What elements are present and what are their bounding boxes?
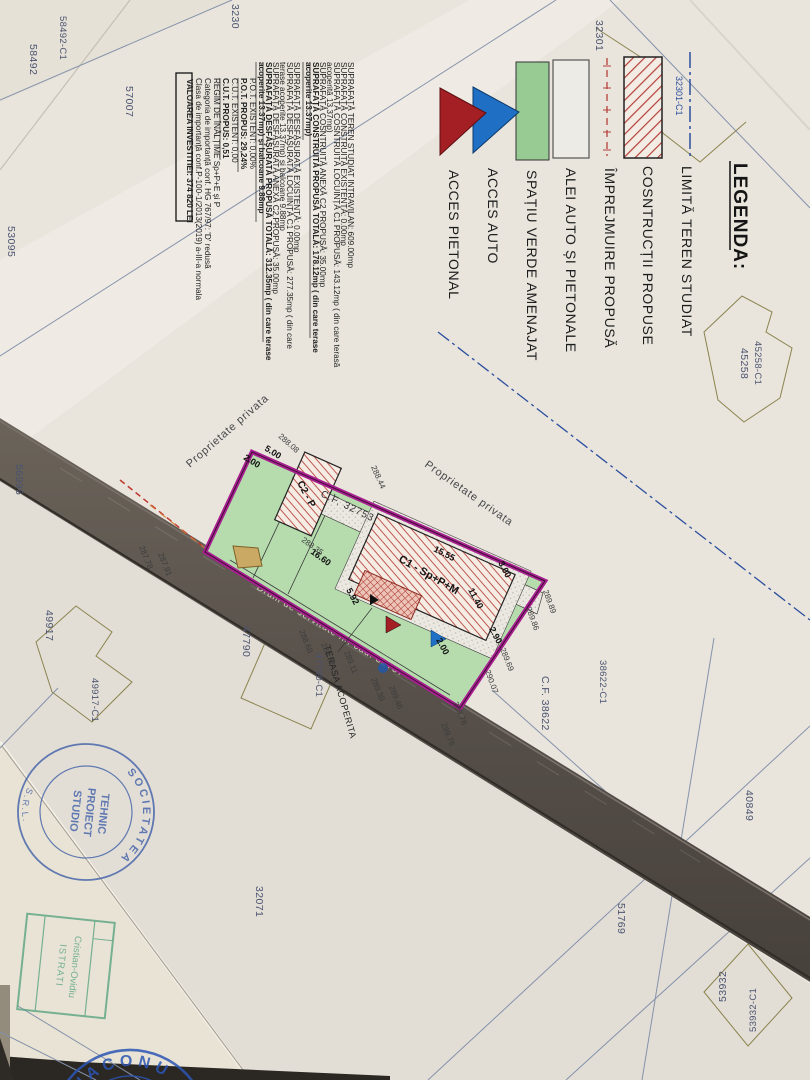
parcel-label-57007: 57007 bbox=[123, 86, 135, 117]
legend-item-spatiu-verde: SPAȚIU VERDE AMENAJAT bbox=[524, 170, 540, 361]
area-line: acoperite 13.37mp) și balcoane 9.88mp bbox=[257, 62, 266, 214]
parcel-label-49917-c1: 49917-C1 bbox=[89, 678, 100, 722]
parcel-label-40849: 40849 bbox=[743, 790, 755, 821]
indicator-line: P.O.T. EXISTENT: 0,00% bbox=[248, 78, 257, 169]
parcel-label-47790: 47790 bbox=[240, 626, 252, 657]
green-rect-icon bbox=[516, 62, 549, 160]
legend-item-acces-auto: ACCES AUTO bbox=[485, 168, 501, 264]
indicator-line: REGIM DE ÎNĂLȚIME Sp+P+E și P bbox=[212, 78, 222, 208]
parcel-label-3230: 3230 bbox=[229, 4, 241, 29]
investment-value-text: VALOAREA INVESTITIEI: 374 820 LEI bbox=[185, 79, 194, 223]
parcel-label-38622-c1: 38622-C1 bbox=[597, 660, 608, 704]
parcel-label-56996: 56996 bbox=[13, 464, 25, 495]
legend-item-imprejmuire: ÎMPREJMUIRE PROPUSĂ bbox=[602, 167, 618, 348]
parcel-label-51769: 51769 bbox=[615, 903, 627, 934]
legend-item-limita: LIMITĂ TEREN STUDIAT bbox=[679, 166, 695, 337]
parcel-label-32301: 32301 bbox=[593, 20, 605, 51]
parcel-label-32301-c1: 32301-C1 bbox=[674, 76, 684, 116]
photographed-site-plan: Drum de servitute nr. cad. 32757 C.F. 32… bbox=[0, 0, 810, 1080]
parcel-label-53095: 53095 bbox=[5, 226, 17, 257]
parcel-label-47790-c1: 47790-C1 bbox=[313, 653, 324, 697]
legend-title: LEGENDA: bbox=[729, 163, 750, 270]
parcel-label-58492: 58492 bbox=[27, 44, 39, 75]
existing-gate-shape bbox=[233, 546, 262, 568]
utility-marker-icon bbox=[378, 663, 388, 673]
red-hatch-rect-icon bbox=[624, 57, 662, 158]
indicator-line: Clasa de importanță conf.P-100-1/2013(20… bbox=[194, 78, 203, 301]
parcel-label-45258-c1: 45258-C1 bbox=[752, 341, 763, 385]
legend-item-acces-pietonal: ACCES PIETONAL bbox=[446, 170, 462, 300]
indicator-line: C.U.T. EXISTENT: 0,00 bbox=[230, 78, 239, 163]
parcel-label-cf-38622: C.F. 38622 bbox=[539, 676, 551, 731]
indicator-line: C.U.T. PROPUS: 0,51 bbox=[221, 78, 230, 159]
parcel-label-58492-c1: 58492-C1 bbox=[57, 16, 68, 60]
white-rect-icon bbox=[553, 60, 589, 158]
parcel-label-45258: 45258 bbox=[738, 348, 750, 379]
parcel-label-53932: 53932 bbox=[717, 971, 729, 1002]
legend-item-alei: ALEI AUTO ȘI PIETONALE bbox=[563, 168, 579, 353]
area-line: acoperite 13.37mp) bbox=[304, 62, 313, 136]
legend-item-constructii: COSNTRUCȚII PROPUSE bbox=[640, 166, 656, 345]
indicator-line: P.O.T. PROPUS: 29,24% bbox=[239, 78, 248, 170]
indicator-line: Categoria de importanță conf. HG 767/97:… bbox=[203, 78, 212, 269]
parcel-label-49917: 49917 bbox=[43, 610, 55, 641]
parcel-label-53932-c1: 53932-C1 bbox=[748, 988, 759, 1032]
site-plan-canvas: Drum de servitute nr. cad. 32757 C.F. 32… bbox=[0, 0, 810, 1080]
parcel-label-32071: 32071 bbox=[253, 886, 265, 917]
